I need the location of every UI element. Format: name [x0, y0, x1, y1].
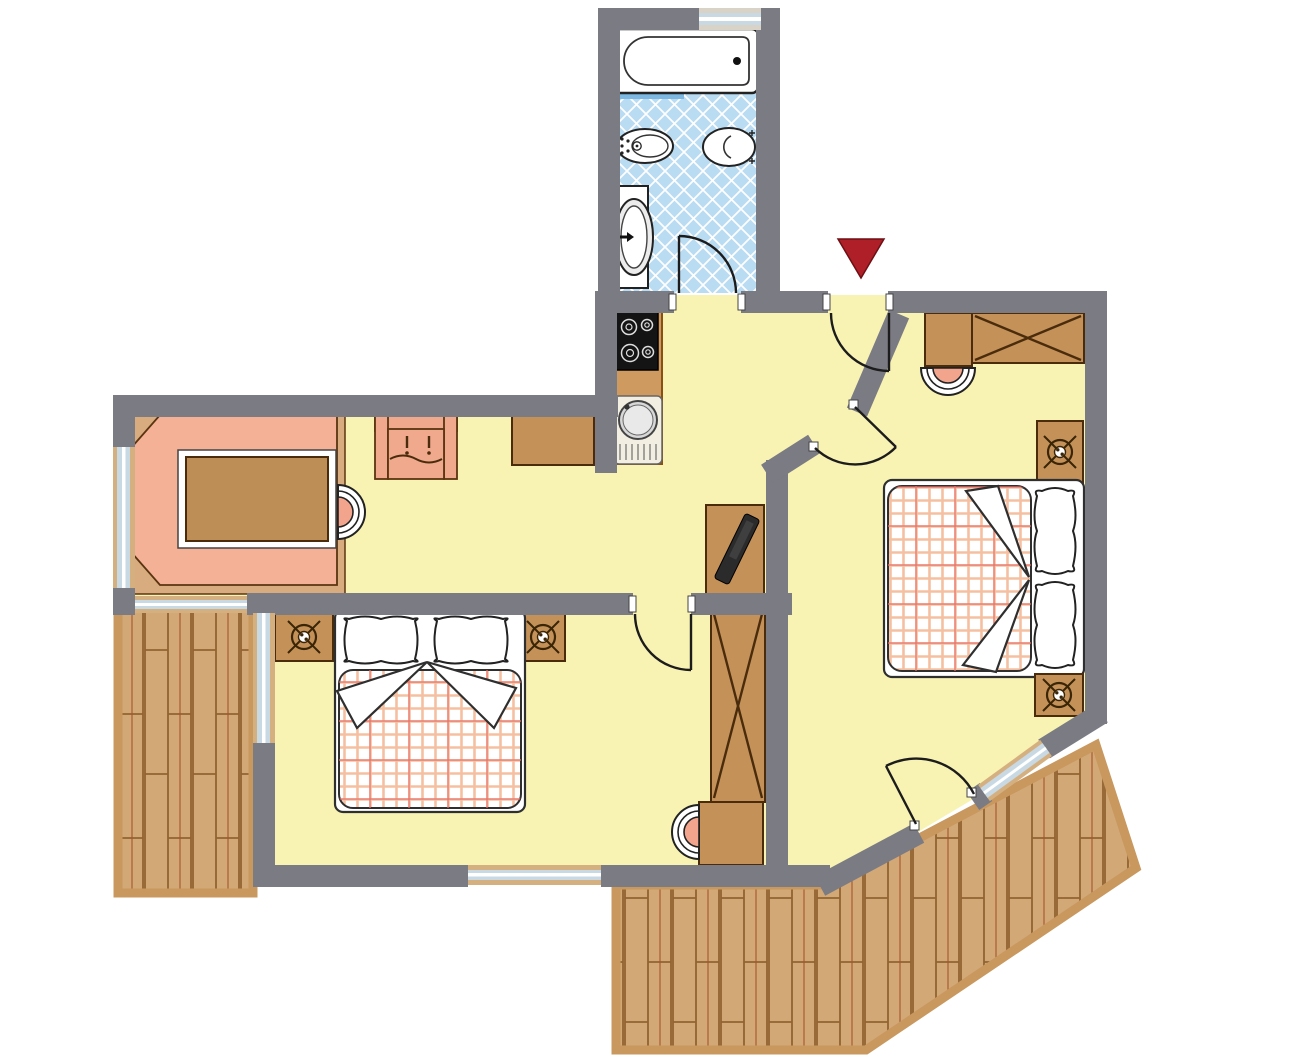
lamp-icon	[288, 621, 320, 653]
bathtub-drain	[733, 57, 741, 65]
bedroom-left-bottom-window	[468, 865, 601, 885]
desk	[925, 313, 972, 366]
bidet	[617, 129, 673, 163]
living-left-window	[113, 447, 135, 588]
kitchen	[612, 306, 662, 464]
pillow	[1035, 488, 1076, 574]
sideboard	[512, 415, 594, 465]
bathtub	[614, 29, 758, 93]
bathroom-window	[699, 8, 761, 30]
lamp-icon	[1043, 679, 1075, 711]
bathroom	[614, 29, 758, 293]
kitchen-sink	[614, 396, 662, 464]
pillow	[434, 617, 507, 664]
living-balcony-window	[135, 596, 247, 613]
desk	[699, 802, 763, 865]
entrance-arrow-icon	[838, 239, 884, 278]
bedroom-left-balcony-window	[253, 613, 275, 743]
bed-blanket-accent	[888, 486, 1031, 671]
balcony-left	[118, 606, 253, 893]
floor-plan-page: Apartment floor plan	[0, 0, 1300, 1061]
sink-drainer	[620, 444, 656, 460]
floor-plan: Apartment floor plan	[0, 0, 1300, 1061]
dining-table	[186, 457, 328, 541]
stove	[616, 312, 658, 370]
pillow	[344, 617, 417, 664]
lamp-icon	[527, 621, 559, 653]
armchair	[375, 415, 457, 479]
lamp-icon	[1044, 436, 1076, 468]
balcony-left-decking	[118, 606, 253, 893]
toilet	[703, 128, 755, 166]
pillow	[1035, 582, 1076, 668]
